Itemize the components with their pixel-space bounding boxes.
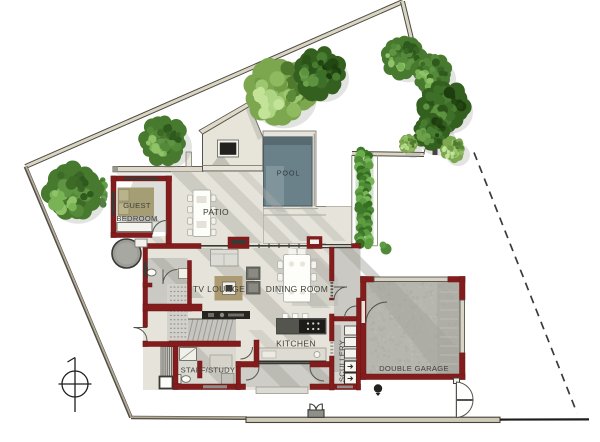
svg-text:POOL: POOL [277, 169, 301, 178]
svg-text:STAFF/STUDY: STAFF/STUDY [181, 366, 236, 375]
svg-text:BEDROOM: BEDROOM [116, 214, 157, 223]
svg-text:DINING ROOM: DINING ROOM [266, 284, 328, 294]
svg-text:GUEST: GUEST [123, 201, 151, 210]
svg-text:DOUBLE GARAGE: DOUBLE GARAGE [379, 364, 449, 373]
svg-text:PATIO: PATIO [203, 207, 229, 217]
svg-text:SCULLERY: SCULLERY [338, 340, 347, 382]
svg-text:KITCHEN: KITCHEN [276, 339, 316, 349]
svg-text:TV LOUNGE: TV LOUNGE [193, 284, 245, 294]
